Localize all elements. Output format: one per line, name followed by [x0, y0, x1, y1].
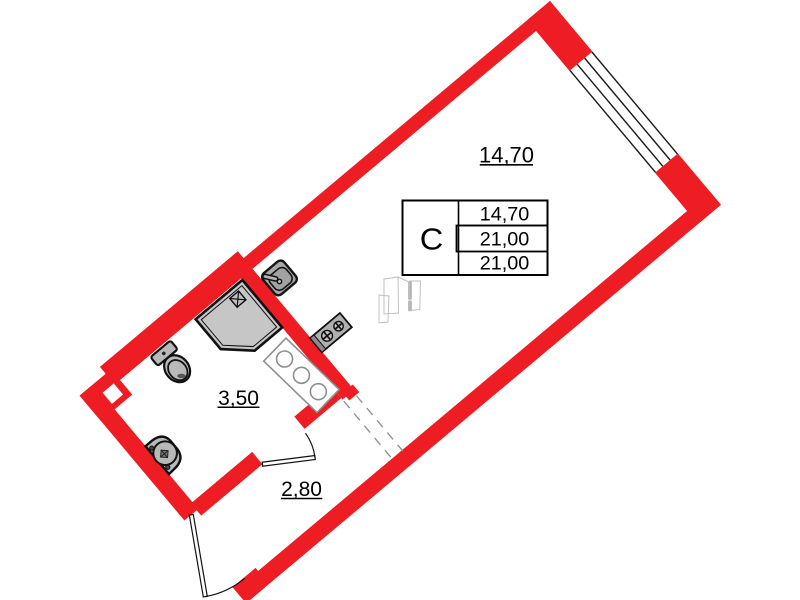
- svg-text:3,50: 3,50: [218, 387, 259, 410]
- svg-text:С: С: [420, 223, 444, 257]
- svg-text:21,00: 21,00: [480, 228, 530, 250]
- svg-text:14,70: 14,70: [480, 204, 530, 226]
- svg-text:21,00: 21,00: [480, 252, 530, 274]
- svg-text:14,70: 14,70: [479, 143, 534, 168]
